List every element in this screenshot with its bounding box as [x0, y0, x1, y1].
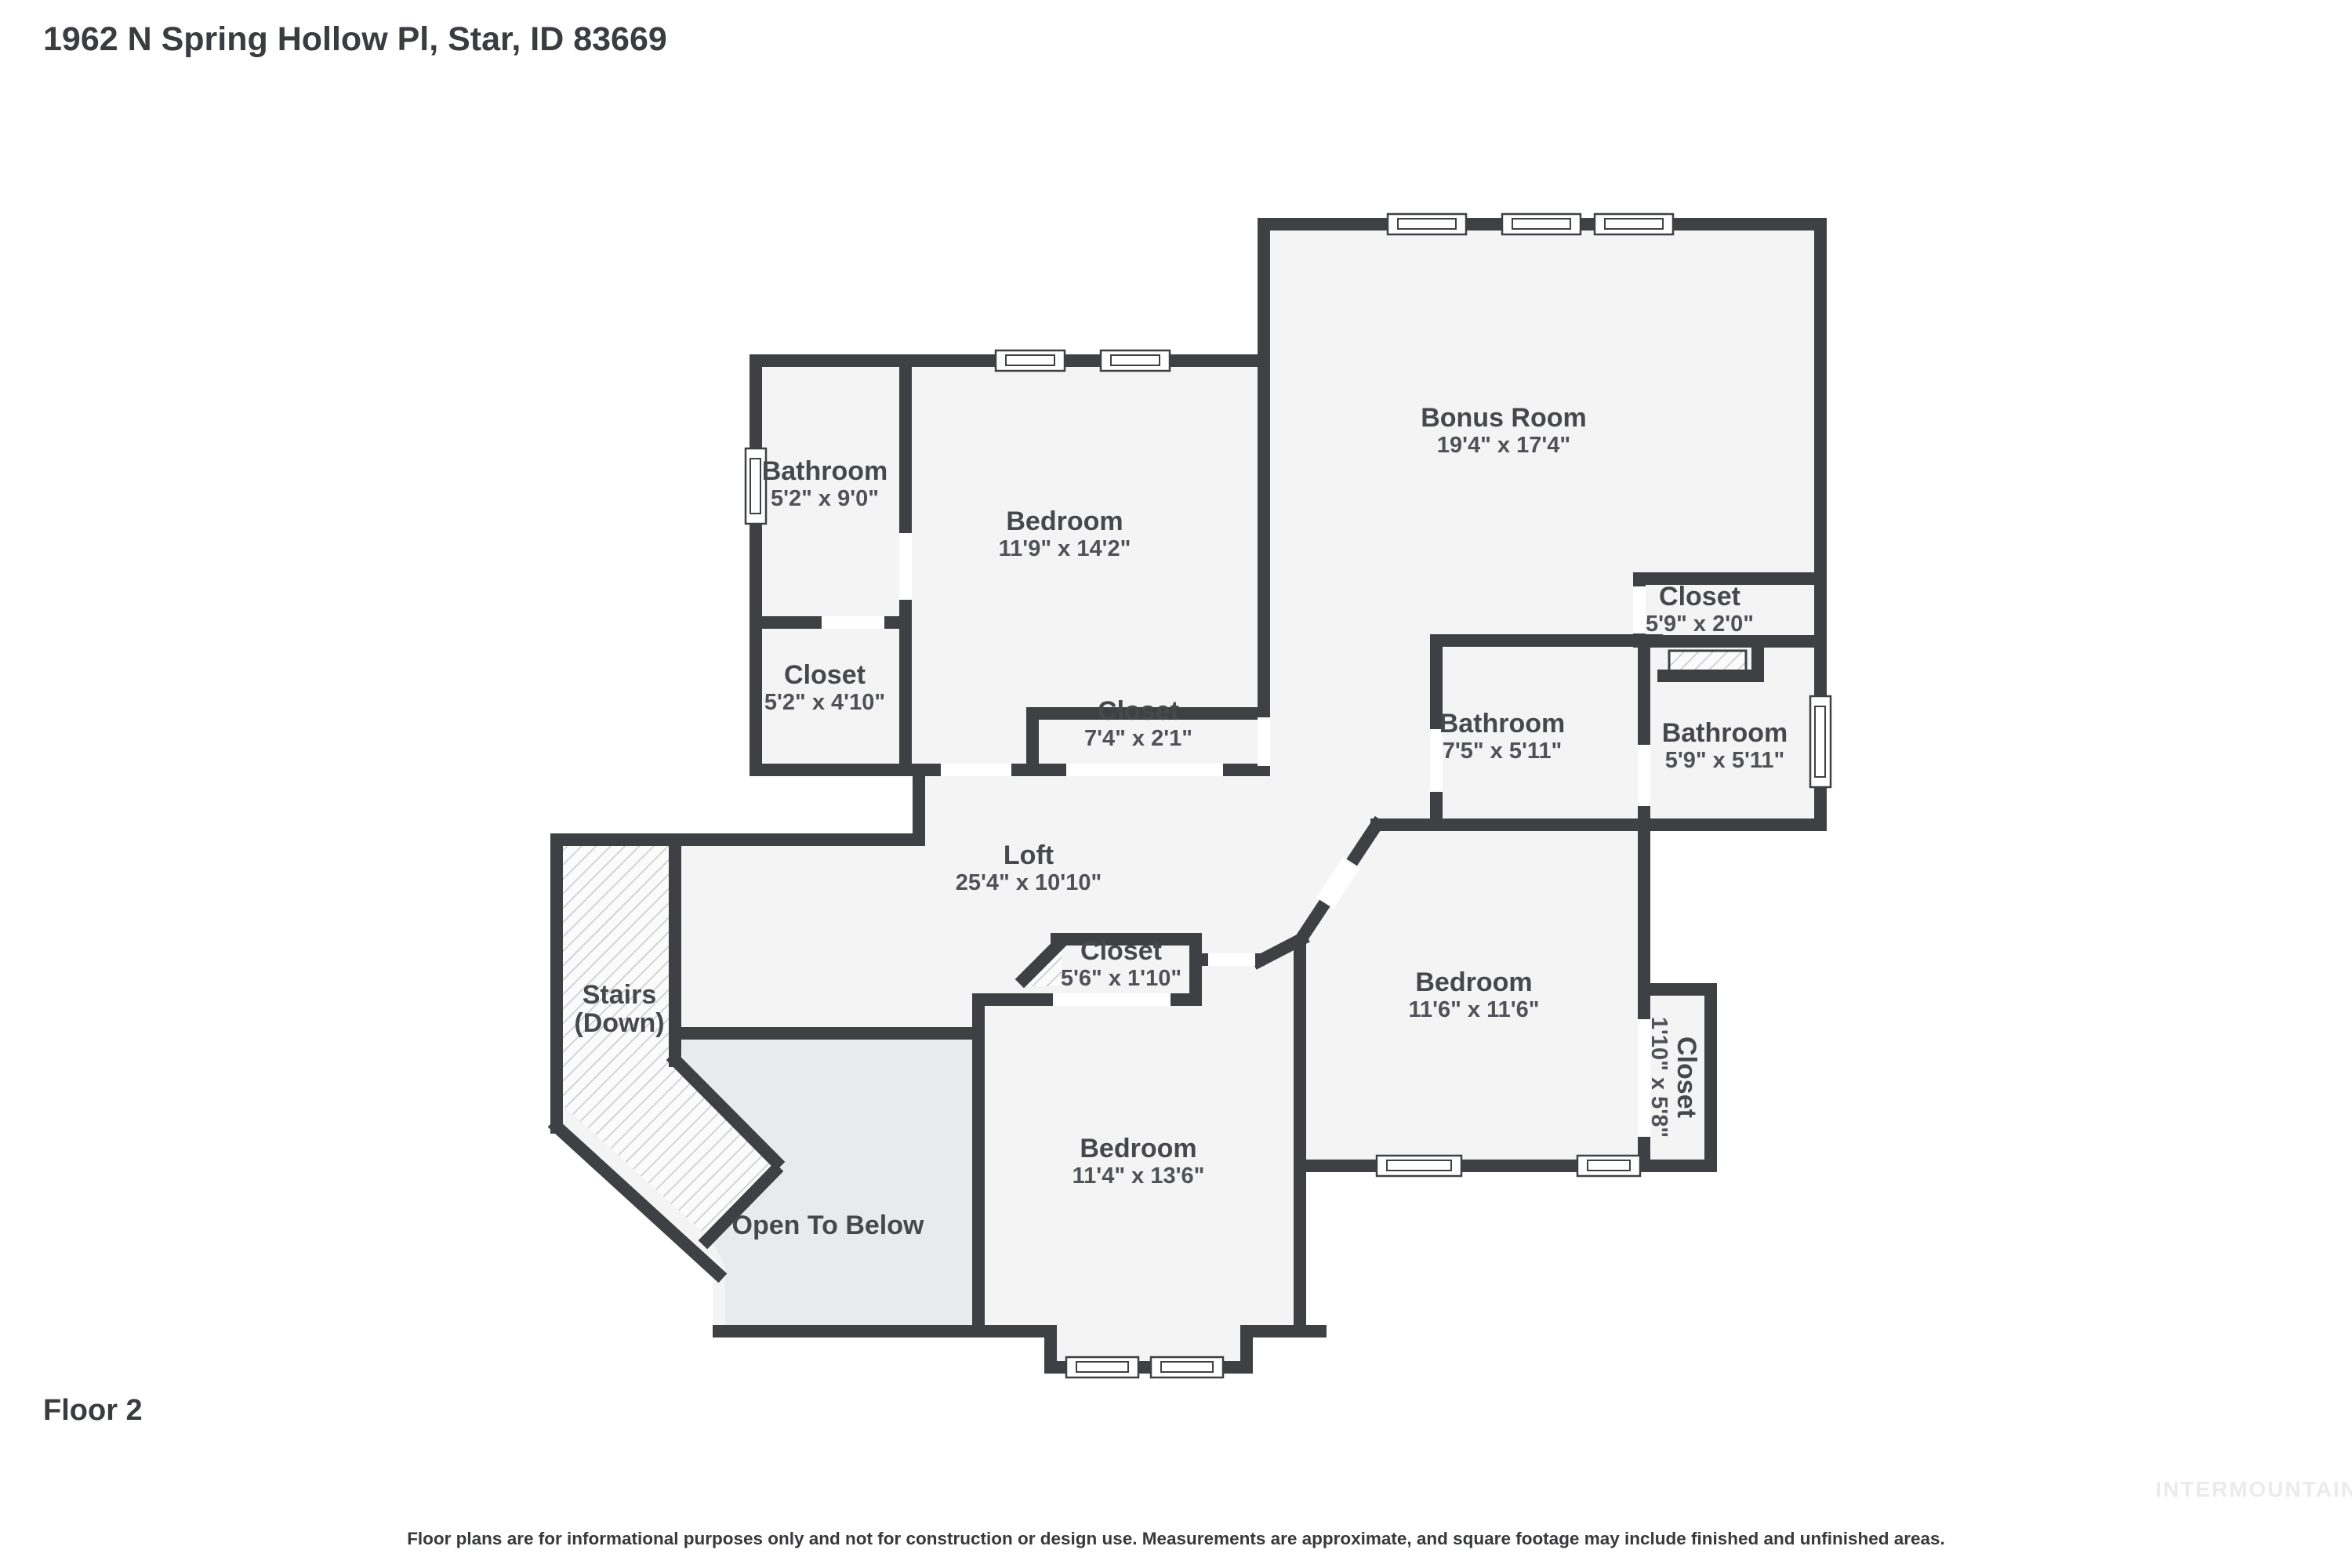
- room-label: 7'4" x 2'1": [1084, 726, 1192, 751]
- room-label: 11'4" x 13'6": [1073, 1163, 1205, 1189]
- floor-plan: Bathroom5'2" x 9'0"Closet5'2" x 4'10"Bed…: [0, 0, 2352, 1568]
- room-label: Open To Below: [732, 1210, 924, 1240]
- room-label: 5'2" x 9'0": [771, 486, 879, 511]
- shelf-hatch: [1669, 651, 1746, 671]
- room-label: Bathroom: [762, 456, 888, 486]
- room-label: (Down): [574, 1008, 664, 1038]
- room-label: Bedroom: [1080, 1134, 1196, 1163]
- room-label: Closet: [1671, 1036, 1701, 1118]
- disclaimer-text: Floor plans are for informational purpos…: [0, 1529, 2352, 1549]
- room-label: 5'2" x 4'10": [764, 690, 885, 715]
- floor-label: Floor 2: [43, 1394, 143, 1428]
- room-label: Bedroom: [1006, 506, 1123, 536]
- room-label: 11'9" x 14'2": [999, 536, 1131, 561]
- room-label: 11'6" x 11'6": [1408, 997, 1539, 1022]
- room-label: Stairs: [583, 980, 657, 1010]
- room-label: 5'9" x 2'0": [1646, 612, 1754, 637]
- room-label: Closet: [1098, 696, 1179, 726]
- room-label: Bathroom: [1439, 709, 1566, 739]
- room-label: Closet: [784, 660, 866, 690]
- room-label: 5'6" x 1'10": [1061, 966, 1181, 991]
- room-label: Closet: [1080, 936, 1162, 966]
- watermark: INTERMOUNTAIN: [2155, 1477, 2352, 1502]
- room-label: 7'5" x 5'11": [1443, 739, 1563, 764]
- room-label: Closet: [1659, 582, 1740, 612]
- room-label: 1'10" x 5'8": [1646, 1017, 1671, 1138]
- room-label: Loft: [1004, 840, 1054, 870]
- room-label: 19'4" x 17'4": [1437, 433, 1570, 458]
- room-label: Bonus Room: [1421, 403, 1587, 433]
- room-label: Bathroom: [1662, 718, 1788, 748]
- room-label: 5'9" x 5'11": [1665, 748, 1785, 773]
- room-label: Bedroom: [1415, 967, 1532, 997]
- room-label: 25'4" x 10'10": [956, 870, 1102, 895]
